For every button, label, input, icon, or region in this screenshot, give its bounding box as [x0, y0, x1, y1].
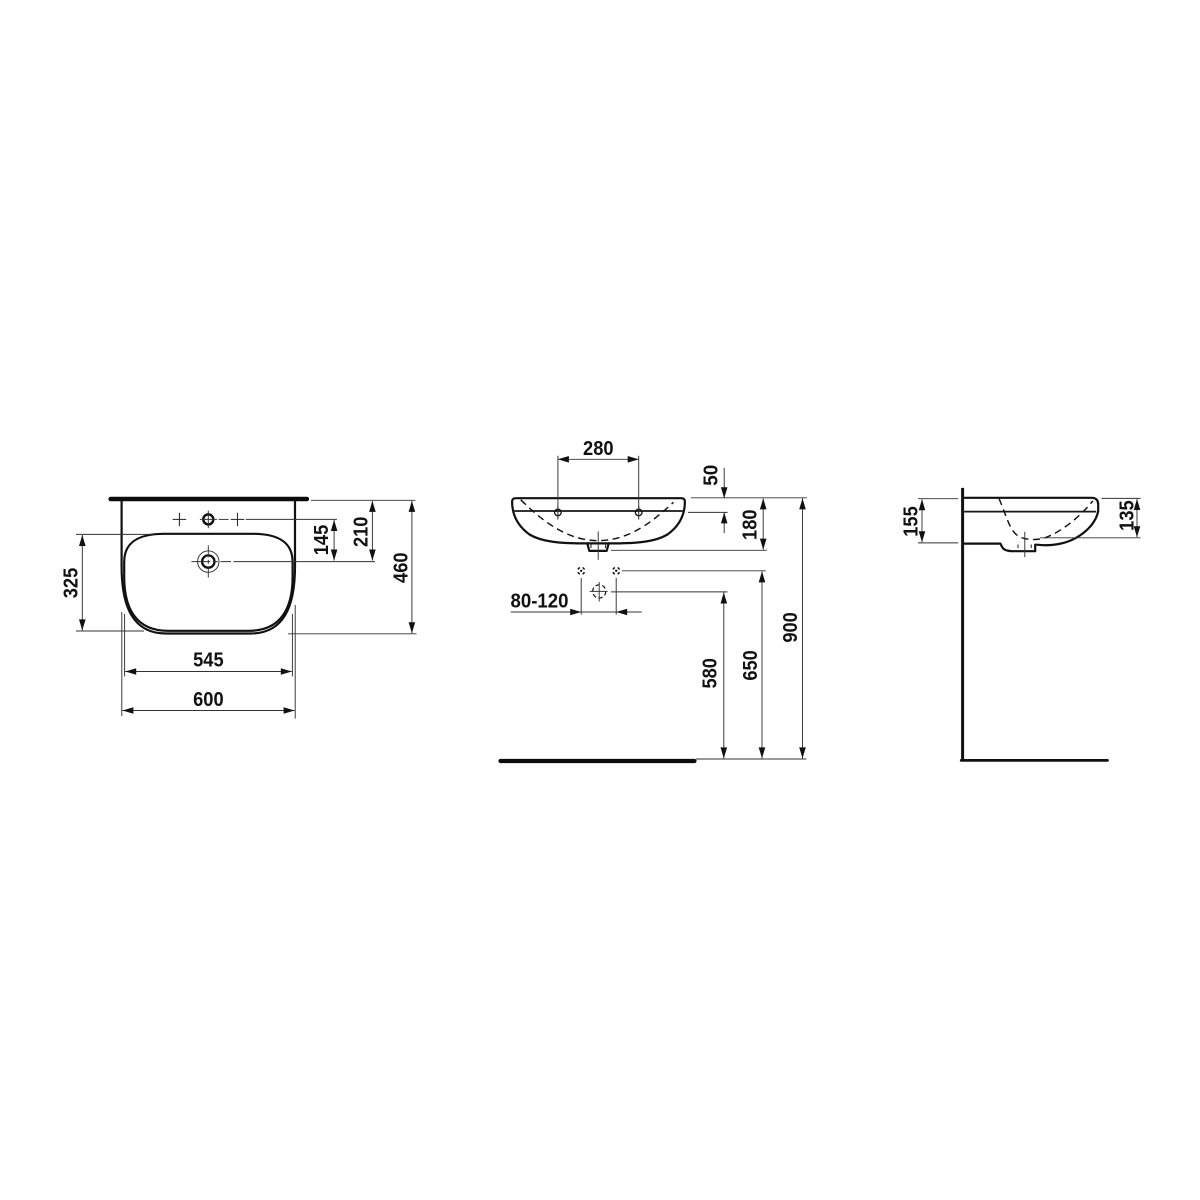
- svg-text:180: 180: [740, 509, 762, 540]
- svg-text:80-120: 80-120: [511, 591, 569, 613]
- svg-text:155: 155: [901, 506, 923, 537]
- svg-text:900: 900: [780, 612, 802, 643]
- svg-text:325: 325: [61, 568, 83, 599]
- svg-text:600: 600: [193, 689, 224, 711]
- svg-text:145: 145: [311, 525, 333, 556]
- svg-text:135: 135: [1117, 500, 1139, 531]
- svg-text:210: 210: [351, 517, 373, 548]
- svg-text:650: 650: [740, 650, 762, 681]
- svg-text:280: 280: [583, 438, 614, 460]
- svg-text:460: 460: [391, 552, 413, 583]
- svg-text:50: 50: [701, 465, 723, 486]
- svg-text:545: 545: [193, 649, 224, 671]
- svg-text:580: 580: [700, 658, 722, 689]
